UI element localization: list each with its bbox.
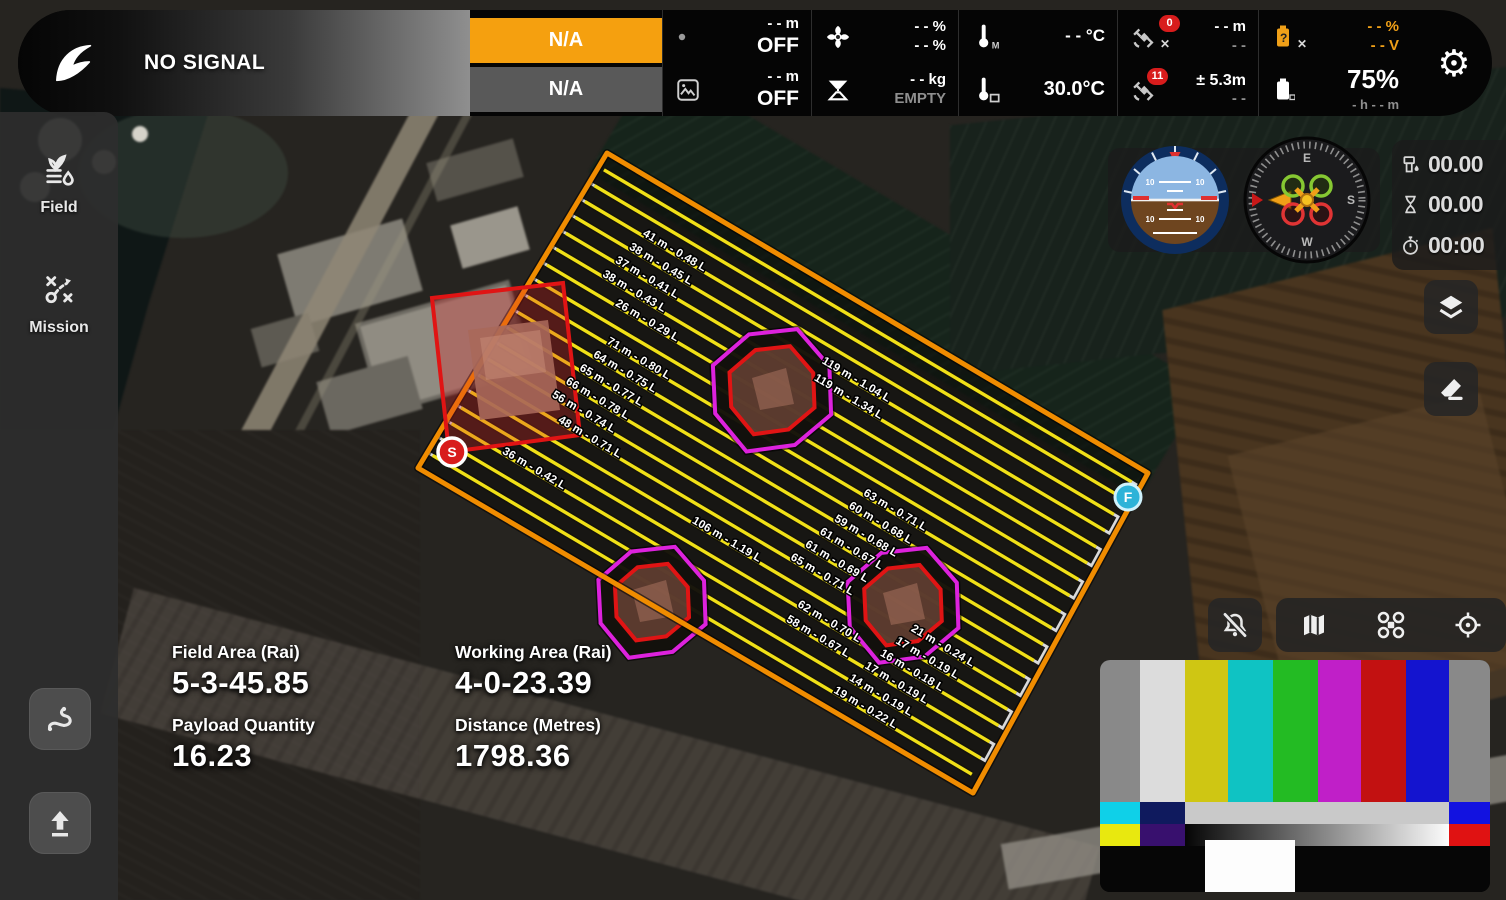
payload-label: Payload Quantity	[172, 715, 455, 736]
telemetry-cells: - - m OFF - - m OFF	[662, 10, 1411, 116]
working-area-label: Working Area (Rai)	[455, 642, 612, 663]
pump-fan-icon	[824, 23, 852, 51]
mode-primary[interactable]: N/A	[470, 18, 662, 63]
payload-stat: Payload Quantity 16.23	[172, 715, 455, 774]
layers-button[interactable]	[1424, 280, 1478, 334]
app-screen: 41 m - 0.48 L38 m - 0.45 L37 m - 0.41 L3…	[0, 0, 1506, 900]
smpte-bars-main	[1100, 660, 1490, 802]
svg-text:W: W	[1301, 235, 1313, 249]
elapsed-work: 00.00	[1392, 191, 1506, 218]
distance-stat: Distance (Metres) 1798.36	[455, 715, 612, 774]
attitude-indicator: 1010 1010	[1119, 144, 1231, 256]
mode-indicators: N/A N/A	[470, 10, 662, 116]
gear-icon: ⚙	[1437, 45, 1470, 82]
start-marker-label: S	[447, 444, 456, 460]
svg-text:S: S	[1347, 193, 1355, 207]
hourglass-icon	[1400, 194, 1421, 215]
sidebar-item-label: Field	[0, 199, 118, 217]
start-marker[interactable]: S	[438, 438, 466, 466]
upload-button[interactable]	[29, 792, 91, 854]
satellite-icon: 0 ✕	[1130, 23, 1170, 51]
rc-battery-cell[interactable]: ? ✕ - - % - - V	[1259, 10, 1411, 63]
route-icon	[44, 703, 76, 735]
finish-marker[interactable]: F	[1115, 484, 1141, 510]
spray-rate-cell[interactable]: - - % - - %	[812, 10, 958, 63]
battery-unknown-icon: ? ✕	[1271, 23, 1307, 51]
temp-box-cell[interactable]: 30.0°C	[959, 63, 1117, 116]
top-status-bar: NO SIGNAL N/A N/A - - m OFF	[18, 10, 1492, 116]
smpte-bars-strip2	[1100, 824, 1490, 846]
gnss-rtk-cell[interactable]: 0 ✕ - - m - -	[1118, 10, 1258, 63]
brand-logo-icon	[46, 37, 98, 89]
working-area-stat: Working Area (Rai) 4-0-23.39	[455, 642, 612, 701]
battery-icon	[1271, 76, 1295, 104]
x-icon: ✕	[1297, 37, 1307, 51]
left-sidebar: Field Mission	[0, 112, 118, 900]
field-icon	[42, 152, 76, 186]
timer-panel: 00.00 00.00 00:00	[1392, 140, 1506, 270]
sidebar-item-field[interactable]: Field	[0, 152, 118, 217]
field-area-value: 5-3-45.85	[172, 665, 455, 701]
svg-text:E: E	[1303, 151, 1311, 165]
layers-icon	[1436, 292, 1466, 322]
locate-icon[interactable]	[1453, 610, 1483, 640]
smpte-bars-pluge	[1100, 846, 1490, 892]
elapsed-work-value: 00.00	[1428, 191, 1483, 218]
bell-slash-icon	[1220, 610, 1250, 640]
map-toggle-icon[interactable]	[1299, 610, 1329, 640]
route-button[interactable]	[29, 688, 91, 750]
drone-battery-cell[interactable]: 75% - h - - m	[1259, 63, 1411, 116]
svg-text:10: 10	[1146, 215, 1155, 224]
radar-dot-icon	[675, 30, 689, 44]
svg-text:10: 10	[1196, 215, 1205, 224]
working-area-value: 4-0-23.39	[455, 665, 612, 701]
signal-status: NO SIGNAL	[144, 51, 265, 75]
flow-total-value: 00.00	[1428, 151, 1483, 178]
tank-cell[interactable]: - - kg EMPTY	[812, 63, 958, 116]
satellite-icon: 11	[1130, 76, 1158, 104]
flow-total: 00.00	[1392, 151, 1506, 178]
sat-count-badge: 0	[1159, 15, 1180, 32]
field-area-label: Field Area (Rai)	[172, 642, 455, 663]
mission-icon	[42, 272, 76, 306]
svg-text:10: 10	[1146, 178, 1155, 187]
sat-count-badge: 11	[1147, 68, 1168, 85]
drone-position-icon[interactable]	[1376, 610, 1406, 640]
smpte-white-box	[1205, 840, 1295, 892]
radar-height-cell[interactable]: - - m OFF	[663, 10, 811, 63]
upload-icon	[44, 807, 76, 839]
payload-value: 16.23	[172, 738, 455, 774]
svg-text:10: 10	[1196, 178, 1205, 187]
terrain-icon	[675, 77, 701, 103]
fpv-video-feed[interactable]	[1100, 660, 1490, 892]
distance-value: 1798.36	[455, 738, 612, 774]
eraser-button[interactable]	[1424, 362, 1478, 416]
svg-text:?: ?	[1280, 31, 1287, 45]
smpte-bars-strip1	[1100, 802, 1490, 824]
distance-label: Distance (Metres)	[455, 715, 612, 736]
thermometer-m-icon: M	[971, 22, 1001, 52]
flight-time: 00:00	[1392, 232, 1506, 259]
terrain-follow-cell[interactable]: - - m OFF	[663, 63, 811, 116]
mission-stats: Field Area (Rai) 5-3-45.85 Working Area …	[172, 642, 612, 774]
temp-ambient-cell[interactable]: M - - °C	[959, 10, 1117, 63]
compass: ESW	[1243, 136, 1371, 264]
x-icon: ✕	[1160, 37, 1170, 51]
map-mini-toolbar	[1276, 598, 1506, 652]
no-fly-rectangle[interactable]	[432, 283, 580, 452]
field-area-stat: Field Area (Rai) 5-3-45.85	[172, 642, 455, 701]
stopwatch-icon	[1400, 235, 1421, 256]
hopper-icon	[824, 76, 852, 104]
thermometer-box-icon	[971, 75, 1001, 105]
gnss-main-cell[interactable]: 11 ± 5.3m - -	[1118, 63, 1258, 116]
signal-section: NO SIGNAL	[18, 10, 470, 116]
mute-alerts-button[interactable]	[1208, 598, 1262, 652]
mode-secondary[interactable]: N/A	[470, 67, 662, 112]
flow-meter-icon	[1400, 154, 1421, 175]
sidebar-item-label: Mission	[0, 319, 118, 337]
eraser-icon	[1436, 374, 1466, 404]
svg-text:M: M	[992, 40, 1000, 50]
finish-marker-label: F	[1124, 489, 1133, 505]
flight-time-value: 00:00	[1428, 232, 1484, 259]
sidebar-item-mission[interactable]: Mission	[0, 272, 118, 337]
